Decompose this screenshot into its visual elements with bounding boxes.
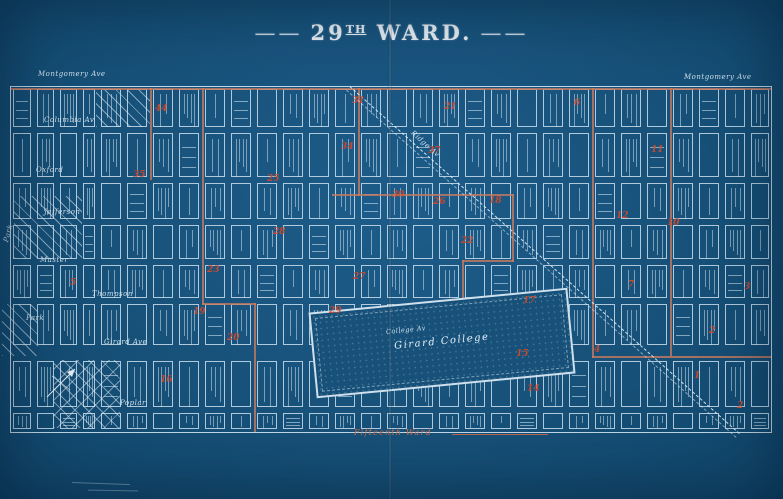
district-number: 31: [352, 96, 365, 106]
city-block: [37, 265, 54, 298]
city-block: [309, 133, 329, 177]
city-block: [751, 413, 769, 429]
city-block: [725, 89, 745, 127]
lot-line: [558, 188, 559, 219]
lot-line: [758, 139, 759, 162]
lot-line: [395, 270, 396, 291]
lot-line: [740, 367, 741, 402]
district-number: 44: [155, 104, 168, 114]
city-block: [699, 183, 719, 219]
lot-line: [64, 310, 65, 331]
city-block: [673, 89, 693, 127]
lot-line: [159, 139, 160, 162]
lot-line: [89, 310, 90, 336]
district-number: 18: [489, 196, 502, 206]
lot-line: [728, 283, 742, 284]
lot-line: [760, 230, 761, 251]
district-number: 19: [193, 307, 206, 317]
city-block: [673, 225, 693, 259]
city-block: [751, 265, 769, 298]
city-block: [13, 413, 31, 429]
city-block: [179, 413, 199, 429]
lot-line: [402, 270, 403, 298]
city-block: [257, 133, 277, 177]
lot-line: [579, 188, 580, 211]
lot-line: [548, 188, 549, 207]
lot-line: [212, 139, 213, 172]
district-number: 12: [616, 211, 629, 221]
lot-line: [40, 275, 52, 276]
city-block: [13, 89, 31, 127]
street-label: Jefferson: [44, 208, 80, 216]
lot-line: [239, 139, 240, 162]
lot-line: [220, 188, 221, 211]
lot-line: [607, 416, 608, 427]
lot-line: [267, 139, 268, 162]
city-block: [647, 89, 667, 127]
district-number: 2: [737, 401, 743, 411]
city-block: [83, 133, 95, 177]
district-number: 22: [461, 236, 474, 246]
city-block: [231, 413, 251, 429]
lot-line: [473, 416, 474, 424]
lot-line: [598, 211, 612, 212]
lot-line: [706, 416, 707, 424]
city-block: [205, 225, 225, 259]
lot-line: [189, 367, 190, 407]
street-label: Thompson: [92, 290, 133, 298]
lot-line: [70, 310, 71, 341]
lot-line: [142, 270, 143, 291]
city-block: [647, 265, 667, 298]
lot-line: [602, 139, 603, 167]
city-block: [231, 183, 251, 219]
lot-line: [685, 188, 686, 219]
city-block: [283, 183, 303, 219]
district-number: 14: [527, 384, 540, 394]
lot-line: [497, 94, 498, 114]
lot-line: [220, 367, 221, 402]
lot-line: [522, 270, 523, 291]
lot-line: [166, 310, 167, 336]
city-block: [673, 413, 693, 429]
adjacent-ward-label: Fifteenth Ward: [354, 428, 432, 437]
city-block: [179, 225, 199, 259]
lot-line: [572, 375, 586, 376]
district-number: 10: [667, 218, 680, 228]
hatched-area: [14, 196, 82, 258]
district-number: 37: [428, 146, 441, 156]
lot-line: [679, 139, 680, 162]
city-block: [647, 413, 667, 429]
lot-line: [740, 230, 741, 259]
lot-line: [236, 139, 237, 177]
lot-line: [161, 367, 162, 407]
lot-line: [532, 270, 533, 287]
lot-line: [165, 188, 166, 219]
lot-line: [680, 94, 681, 127]
ward-division-line: [462, 260, 514, 262]
title-left-dash: ——: [247, 21, 311, 45]
lot-line: [368, 270, 369, 298]
lot-line: [676, 326, 690, 327]
lot-line: [350, 230, 351, 248]
district-number: 26: [433, 197, 446, 207]
lot-line: [732, 139, 733, 172]
lot-line: [267, 230, 268, 259]
lot-line: [241, 416, 242, 427]
lot-line: [449, 270, 450, 298]
lot-line: [338, 396, 352, 397]
lot-line: [161, 188, 162, 215]
lot-line: [260, 275, 274, 276]
city-block: [179, 133, 199, 177]
lot-line: [754, 418, 767, 419]
lot-line: [662, 270, 663, 291]
lot-line: [584, 94, 585, 122]
city-block: [439, 413, 459, 429]
lot-line: [350, 188, 351, 215]
city-block: [231, 361, 251, 407]
lot-line: [182, 147, 196, 148]
lot-line: [420, 94, 421, 118]
lot-line: [600, 230, 601, 259]
city-block: [751, 361, 769, 407]
lot-line: [16, 110, 29, 111]
lot-line: [263, 230, 264, 255]
lot-line: [142, 230, 143, 259]
city-block: [153, 133, 173, 177]
lot-line: [182, 157, 196, 158]
hatched-area: [96, 90, 150, 127]
lot-line: [629, 139, 630, 177]
lot-line: [168, 139, 169, 172]
city-block: [465, 265, 485, 298]
city-block: [621, 413, 641, 429]
city-block: [699, 225, 719, 259]
city-block: [647, 183, 667, 219]
lot-line: [577, 310, 578, 336]
lot-line: [733, 230, 734, 251]
city-block: [595, 133, 615, 177]
district-number: 4: [594, 345, 600, 355]
map-frame-right: [771, 86, 772, 432]
lot-line: [215, 188, 216, 207]
lot-line: [712, 230, 713, 248]
city-block: [413, 183, 433, 219]
city-block: [569, 183, 589, 219]
paper-fold-line: [388, 0, 392, 499]
lot-line: [610, 230, 611, 255]
city-block: [127, 183, 147, 219]
lot-line: [735, 188, 736, 207]
lot-line: [40, 283, 52, 284]
lot-line: [290, 94, 291, 114]
lot-line: [295, 188, 296, 207]
city-block: [491, 133, 511, 177]
ward-ordinal: TH: [346, 23, 367, 36]
lot-line: [423, 270, 424, 291]
lot-line: [418, 188, 419, 219]
city-block: [205, 89, 225, 127]
lot-line: [636, 94, 637, 127]
lot-line: [480, 416, 481, 427]
lot-line: [757, 270, 758, 294]
lot-line: [653, 416, 654, 427]
lot-line: [737, 416, 738, 429]
lot-line: [234, 118, 248, 119]
lot-line: [264, 188, 265, 211]
lot-line: [73, 310, 74, 345]
lot-line: [317, 94, 318, 122]
city-block: [361, 183, 381, 219]
lot-line: [468, 110, 482, 111]
lot-line: [246, 310, 247, 336]
lot-line: [314, 94, 315, 118]
lot-line: [657, 230, 658, 255]
lot-line: [133, 230, 134, 251]
lot-line: [116, 310, 117, 331]
title-right-dash: ——: [472, 21, 536, 45]
district-number: 29: [329, 306, 342, 316]
city-block: [257, 89, 277, 127]
lot-line: [738, 139, 739, 177]
lot-line: [260, 283, 274, 284]
lot-line: [676, 335, 690, 336]
city-block: [205, 413, 225, 429]
city-block: [621, 361, 641, 407]
lot-line: [735, 367, 736, 396]
city-block: [647, 304, 667, 345]
lot-line: [369, 139, 370, 167]
lot-line: [636, 310, 637, 331]
lot-line: [272, 416, 273, 425]
lot-line: [572, 396, 586, 397]
lot-line: [186, 230, 187, 259]
lot-line: [662, 416, 663, 424]
lot-line: [709, 367, 710, 407]
lot-line: [530, 188, 531, 207]
lot-line: [503, 139, 504, 177]
lot-line: [756, 94, 757, 122]
ward-division-line: [202, 88, 204, 305]
city-block: [413, 89, 433, 127]
lot-line: [598, 194, 612, 195]
lot-line: [655, 270, 656, 298]
lot-line: [241, 310, 242, 331]
city-block: [569, 225, 589, 259]
map-frame-left: [10, 86, 11, 432]
city-block: [179, 183, 199, 219]
lot-line: [709, 270, 710, 291]
lot-line: [683, 139, 684, 167]
lot-line: [454, 270, 455, 287]
lot-line: [186, 416, 187, 424]
city-block: [699, 133, 719, 177]
lot-line: [706, 230, 707, 259]
lot-line: [26, 416, 27, 429]
ward-division-line: [512, 194, 514, 262]
lot-line: [217, 230, 218, 255]
lot-line: [187, 310, 188, 341]
lot-line: [397, 230, 398, 248]
lot-line: [298, 139, 299, 177]
district-number: 3: [744, 282, 750, 292]
city-block: [257, 183, 277, 219]
lot-line: [702, 118, 716, 119]
lot-line: [524, 188, 525, 219]
lot-line: [605, 94, 606, 114]
lot-line: [754, 422, 767, 423]
city-block: [621, 89, 641, 127]
surveyor-credit-mark: [72, 482, 130, 485]
ward-boundary-rule: [452, 434, 548, 435]
lot-line: [731, 188, 732, 219]
lot-line: [393, 416, 394, 424]
lot-line: [601, 367, 602, 407]
city-block: [595, 361, 615, 407]
city-block: [647, 225, 667, 259]
lot-line: [730, 230, 731, 248]
lot-line: [636, 139, 637, 167]
city-block: [699, 89, 719, 127]
lot-line: [260, 290, 274, 291]
city-block: [361, 413, 381, 429]
lot-line: [402, 416, 403, 427]
city-block: [231, 225, 251, 259]
lot-line: [572, 386, 586, 387]
lot-line: [87, 188, 88, 215]
street-label: Oxford: [36, 166, 63, 174]
lot-line: [113, 139, 114, 162]
city-block: [205, 183, 225, 219]
lot-line: [109, 139, 110, 177]
lot-line: [140, 367, 141, 402]
district-number: 21: [444, 102, 457, 112]
lot-line: [289, 139, 290, 167]
lot-line: [189, 188, 190, 215]
lot-line: [728, 275, 742, 276]
lot-line: [650, 157, 664, 158]
street-label: Montgomery Ave: [38, 70, 106, 78]
lot-line: [324, 270, 325, 298]
lot-line: [428, 188, 429, 215]
lot-line: [85, 251, 93, 252]
district-number: 17: [523, 296, 536, 306]
lot-line: [27, 270, 28, 287]
city-block: [543, 183, 563, 219]
lot-line: [546, 236, 560, 237]
lot-line: [603, 416, 604, 425]
lot-line: [220, 230, 221, 259]
lot-line: [688, 188, 689, 207]
city-block: [153, 183, 173, 219]
lot-line: [296, 94, 297, 118]
lot-line: [191, 310, 192, 345]
district-number: 27: [353, 272, 366, 282]
city-block: [491, 89, 511, 127]
lot-line: [605, 367, 606, 391]
city-block: [283, 413, 303, 429]
district-number: 34: [341, 142, 354, 152]
lot-line: [67, 310, 68, 336]
city-block: [517, 89, 537, 127]
lot-line: [681, 188, 682, 215]
lot-line: [340, 416, 341, 427]
lot-line: [130, 203, 144, 204]
street-label: Poplar: [120, 399, 146, 407]
lot-line: [364, 203, 378, 204]
lot-line: [627, 94, 628, 118]
lot-line: [633, 139, 634, 162]
lot-line: [499, 139, 500, 172]
city-block: [231, 89, 251, 127]
lot-line: [137, 230, 138, 255]
lot-line: [449, 188, 450, 207]
city-block: [673, 183, 693, 219]
hatched-area: [2, 304, 38, 356]
lot-line: [520, 418, 534, 419]
lot-line: [16, 118, 29, 119]
city-block: [673, 304, 693, 345]
lot-line: [367, 94, 368, 127]
lot-line: [705, 270, 706, 287]
city-block: [751, 133, 769, 177]
lot-line: [22, 416, 23, 427]
lot-line: [246, 139, 247, 172]
lot-line: [243, 139, 244, 167]
lot-line: [208, 317, 222, 318]
city-block: [101, 225, 121, 259]
lot-line: [762, 139, 763, 167]
lot-line: [581, 310, 582, 341]
city-block: [13, 133, 31, 177]
lot-line: [631, 230, 632, 248]
city-block: [83, 225, 95, 259]
lot-line: [445, 270, 446, 294]
city-block: [101, 183, 121, 219]
city-block: [725, 265, 745, 298]
city-block: [283, 304, 303, 345]
city-block: [751, 304, 769, 345]
city-block: [37, 413, 54, 429]
lot-line: [350, 416, 351, 425]
lot-line: [688, 139, 689, 172]
lot-line: [187, 94, 188, 118]
lot-line: [293, 270, 294, 287]
lot-line: [714, 270, 715, 294]
city-block: [569, 413, 589, 429]
lot-line: [660, 188, 661, 211]
lot-line: [631, 94, 632, 122]
lot-line: [416, 167, 430, 168]
lot-line: [765, 139, 766, 172]
lot-line: [472, 139, 473, 162]
lot-line: [192, 230, 193, 248]
city-block: [335, 133, 355, 177]
city-block: [413, 265, 433, 298]
lot-line: [85, 236, 93, 237]
lot-line: [399, 270, 400, 294]
lot-line: [116, 139, 117, 167]
lot-line: [501, 230, 502, 259]
lot-line: [546, 244, 560, 245]
lot-line: [133, 416, 134, 427]
lot-line: [340, 230, 341, 251]
lot-line: [659, 270, 660, 287]
lot-line: [501, 416, 502, 424]
lot-line: [316, 416, 317, 425]
